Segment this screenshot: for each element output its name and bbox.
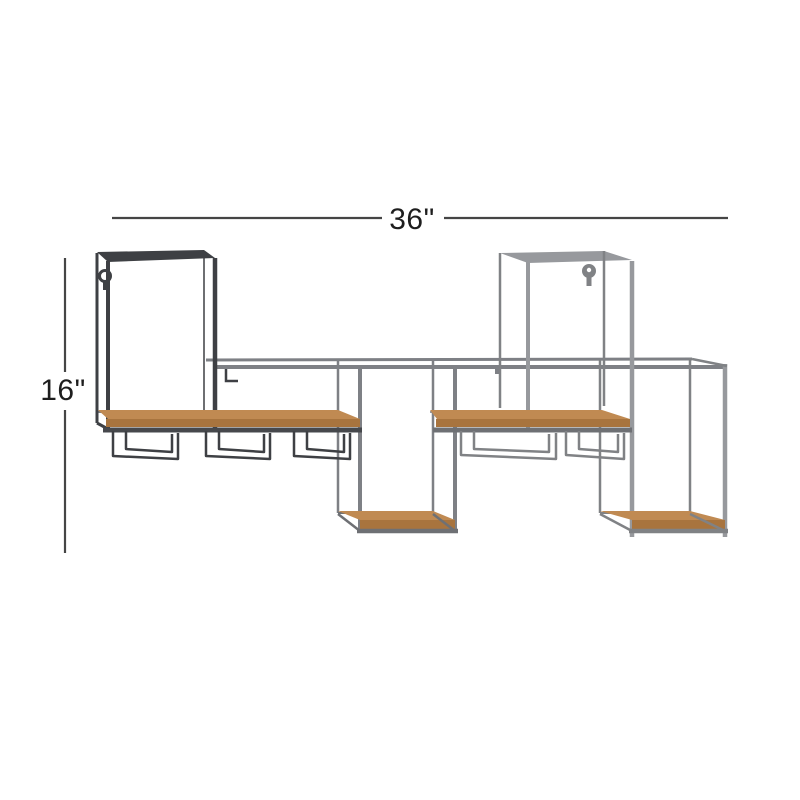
height-dimension: 16" (40, 258, 86, 553)
shelf-wood-front (436, 419, 630, 427)
shelf-wood-top (600, 511, 725, 520)
product-image: 36" 16" (0, 0, 800, 800)
left-box-top-face (97, 250, 215, 262)
middle-box-bottom-shelf (338, 511, 458, 531)
wall-rail (206, 359, 727, 381)
shelf-wood-top (430, 410, 630, 419)
rail-bracket (226, 369, 238, 381)
width-dimension-label: 36" (389, 203, 435, 236)
right-top-box-frame (500, 251, 632, 537)
right-top-box-top-face (500, 251, 632, 263)
stemware-rack (206, 431, 270, 459)
right-bottom-box-bottom-shelf (600, 511, 728, 531)
rail-back (206, 359, 692, 360)
right-shelf (430, 410, 632, 430)
product-dimension-diagram: 36" 16" (0, 0, 800, 800)
shelf-wood-front (106, 419, 360, 427)
middle-box-frame (338, 361, 458, 531)
stemware-rack (294, 431, 350, 459)
width-dimension: 36" (112, 203, 728, 236)
stemware-rack (461, 431, 556, 459)
right-bottom-box-top-diagonal (692, 359, 727, 366)
stemware-rack (113, 431, 178, 459)
left-box-frame (97, 250, 215, 432)
stemware-rack (566, 431, 624, 459)
height-dimension-label: 16" (40, 374, 86, 407)
stemware-racks-left (113, 431, 350, 459)
left-shelf (98, 410, 362, 430)
shelf-wood-top (98, 410, 360, 419)
keyhole-hanger-icon (583, 265, 595, 286)
